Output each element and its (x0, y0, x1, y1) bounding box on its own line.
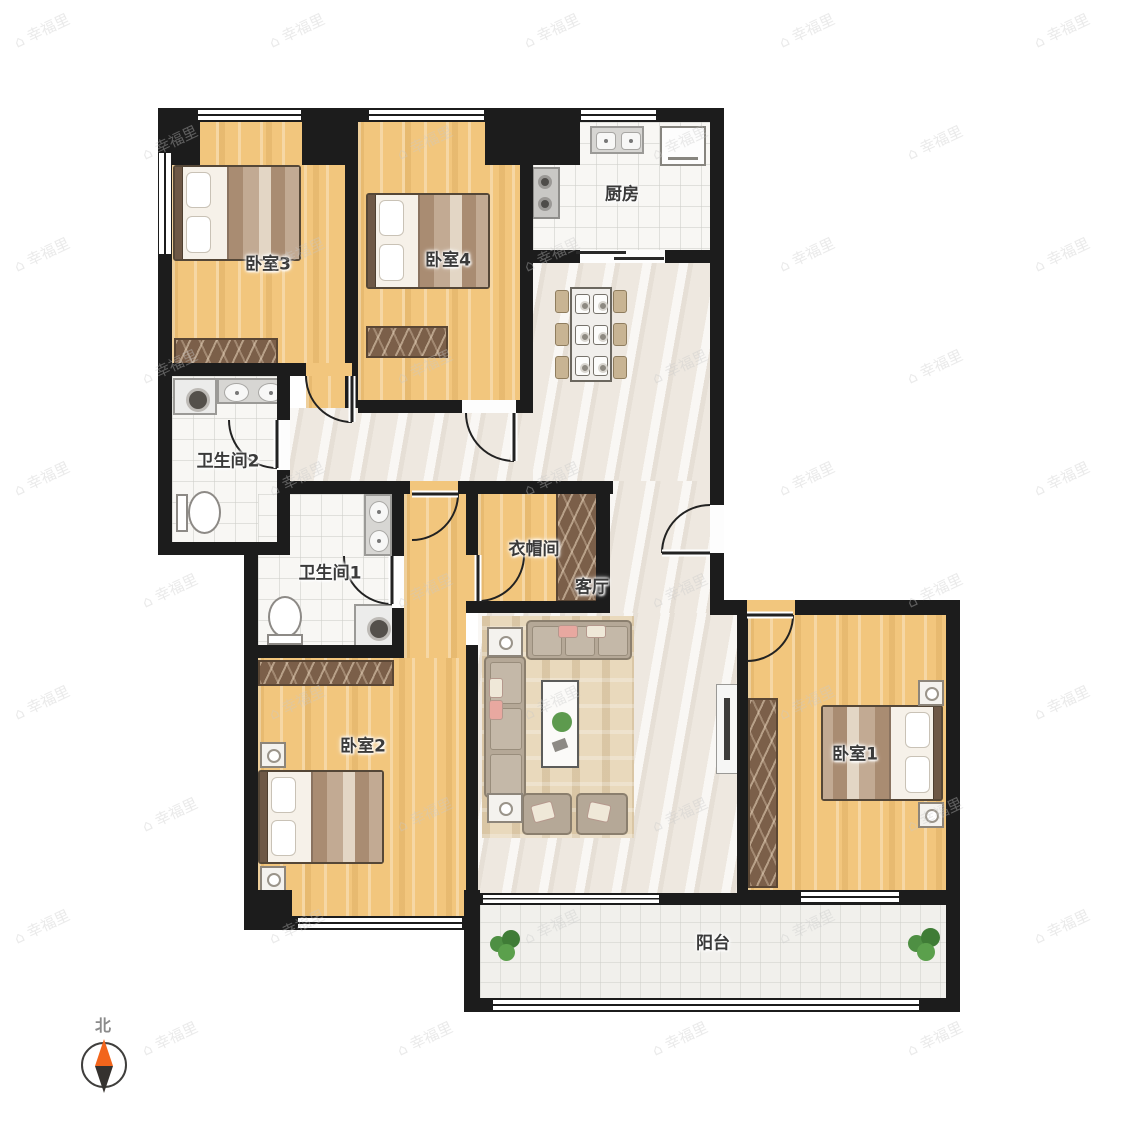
kitchen-label: 厨房 (605, 180, 639, 205)
wall-segment (710, 108, 724, 505)
nightstand (918, 802, 944, 828)
bathroom1-sink (364, 494, 392, 556)
throw-pillow (489, 700, 503, 720)
bedroom4-bed (366, 193, 490, 289)
place-setting (575, 294, 590, 314)
throw-pillow (586, 625, 606, 638)
watermark-logo: ⌂ 幸福里 (1030, 8, 1093, 52)
pillow (271, 777, 296, 813)
window (800, 891, 900, 903)
gas-stove (532, 167, 560, 219)
compass-needle-north (95, 1039, 113, 1066)
pillow (379, 200, 404, 237)
plant-icon (488, 928, 524, 964)
fridge-icon (660, 126, 706, 166)
sink-basin (621, 132, 641, 150)
cloakroom-door (478, 555, 524, 601)
sink-basin (224, 383, 249, 402)
blanket (311, 772, 382, 862)
place-setting (575, 356, 590, 376)
blanket (227, 167, 299, 259)
nightstand (918, 680, 944, 706)
watermark-logo: ⌂ 幸福里 (520, 8, 583, 52)
washing-machine (173, 378, 217, 415)
wall-segment (244, 645, 404, 658)
cushion (490, 754, 522, 796)
window (197, 109, 302, 121)
wall-segment (458, 481, 613, 494)
door-threshold (306, 363, 352, 376)
place-setting (575, 325, 590, 345)
side-table-lamp (487, 627, 523, 657)
watermark-logo: ⌂ 幸福里 (393, 1016, 456, 1060)
sink-basin (369, 501, 389, 523)
wall-segment (244, 890, 292, 918)
wall-segment (710, 600, 747, 615)
watermark-logo: ⌂ 幸福里 (10, 904, 73, 948)
plant-icon (906, 926, 944, 964)
table-plant (552, 712, 572, 732)
bedroom4-label: 卧室4 (425, 246, 471, 271)
kitchen-sink (590, 126, 644, 154)
watermark-logo: ⌂ 幸福里 (10, 232, 73, 276)
nightstand (260, 742, 286, 768)
watermark-logo: ⌂ 幸福里 (1030, 456, 1093, 500)
throw-pillow (558, 625, 578, 638)
bedroom2-suite-door (412, 494, 458, 540)
dining-chair (613, 356, 627, 379)
watermark-logo: ⌂ 幸福里 (138, 1016, 201, 1060)
place-setting (593, 294, 608, 314)
watermark-logo: ⌂ 幸福里 (648, 1016, 711, 1060)
watermark-logo: ⌂ 幸福里 (903, 120, 966, 164)
toilet (176, 494, 188, 532)
wall-segment (466, 601, 610, 613)
door-threshold (462, 400, 516, 413)
bedroom1-door (747, 615, 793, 661)
watermark-logo: ⌂ 幸福里 (138, 568, 201, 612)
headboard (368, 195, 376, 287)
wall-segment (665, 250, 714, 263)
blanket (418, 195, 488, 287)
dining-chair (613, 290, 627, 313)
watermark-logo: ⌂ 幸福里 (775, 232, 838, 276)
compass-needle-south (95, 1066, 113, 1093)
bathroom2-label: 卫生间2 (197, 447, 260, 472)
place-setting (593, 325, 608, 345)
watermark-logo: ⌂ 幸福里 (903, 1016, 966, 1060)
watermark-logo: ⌂ 幸福里 (775, 456, 838, 500)
bedroom3-label: 卧室3 (245, 250, 291, 275)
bedroom4-wardrobe (366, 326, 448, 358)
bedroom1-label: 卧室1 (832, 740, 878, 765)
window (158, 152, 172, 255)
wall-segment (277, 481, 410, 494)
watermark-logo: ⌂ 幸福里 (10, 680, 73, 724)
bedroom3-door (306, 376, 352, 422)
throw-pillow (586, 801, 611, 823)
bedroom2-wardrobe (258, 660, 394, 686)
window (492, 999, 920, 1011)
watermark-logo: ⌂ 幸福里 (775, 8, 838, 52)
sliding-door (576, 251, 626, 254)
dining-chair (613, 323, 627, 346)
toilet (267, 634, 303, 645)
dining-table (570, 287, 612, 382)
toilet (188, 491, 221, 534)
wall-segment (533, 250, 580, 263)
dining-chair (555, 323, 569, 346)
burner (538, 175, 552, 189)
place-setting (593, 356, 608, 376)
watermark-logo: ⌂ 幸福里 (1030, 232, 1093, 276)
entry-door (662, 505, 710, 553)
sink-basin (596, 132, 616, 150)
wall-segment (466, 494, 478, 555)
armchair (576, 793, 628, 835)
tv-panel (716, 684, 738, 774)
dining-chair (555, 290, 569, 313)
headboard (175, 167, 183, 259)
wall-segment (946, 600, 960, 1012)
wall-segment (464, 890, 480, 1012)
pillow (379, 244, 404, 281)
sofa-three-seat (526, 620, 632, 660)
pillow (905, 712, 930, 749)
headboard (260, 772, 268, 862)
sofa-long (484, 656, 526, 798)
wall-segment (520, 108, 533, 413)
wall-segment (358, 400, 462, 413)
pillow (271, 820, 296, 856)
pillow (186, 172, 211, 209)
headboard (933, 707, 941, 799)
window (482, 894, 660, 904)
watermark-logo: ⌂ 幸福里 (10, 456, 73, 500)
floor-plan: 卧室3 卧室4 厨房 卫生间2 卫生间1 衣帽间 客厅 卧室2 卧室1 阳台 北… (0, 0, 1125, 1125)
living-room-label: 客厅 (575, 573, 609, 598)
watermark-logo: ⌂ 幸福里 (138, 792, 201, 836)
door-threshold (710, 505, 724, 553)
toilet (268, 596, 302, 638)
wall-segment (158, 542, 290, 555)
dining-chair (555, 356, 569, 379)
balcony-label: 阳台 (696, 929, 730, 954)
watermark-logo: ⌂ 幸福里 (265, 8, 328, 52)
cloakroom-label: 衣帽间 (509, 535, 560, 560)
watermark-logo: ⌂ 幸福里 (1030, 680, 1093, 724)
sink-basin (369, 530, 389, 552)
wall-segment (277, 363, 290, 420)
bedroom1-wardrobe (748, 698, 778, 888)
wall-segment (392, 494, 404, 556)
window (368, 109, 485, 121)
watermark-logo: ⌂ 幸福里 (903, 344, 966, 388)
window (297, 917, 463, 929)
bedroom4-door (466, 413, 514, 461)
bathroom1-label: 卫生间1 (299, 559, 362, 584)
sliding-door (614, 257, 664, 260)
throw-pillow (530, 800, 556, 823)
watermark-logo: ⌂ 幸福里 (1030, 904, 1093, 948)
burner (538, 197, 552, 211)
nightstand (260, 866, 286, 892)
side-table-lamp (487, 793, 523, 823)
throw-pillow (489, 678, 503, 698)
coffee-table (541, 680, 579, 768)
pillow (905, 756, 930, 793)
bedroom3-bed (173, 165, 301, 261)
bedroom2-bed (258, 770, 384, 864)
book (552, 738, 569, 752)
compass-north-label: 北 (95, 1012, 111, 1036)
wall-segment (516, 400, 533, 413)
wall-segment (244, 542, 258, 930)
armchair (522, 793, 572, 835)
pillow (186, 216, 211, 253)
wall-segment (466, 645, 478, 906)
watermark-logo: ⌂ 幸福里 (10, 8, 73, 52)
bedroom2-label: 卧室2 (340, 732, 386, 757)
wall-segment (795, 600, 959, 615)
window (580, 109, 657, 121)
